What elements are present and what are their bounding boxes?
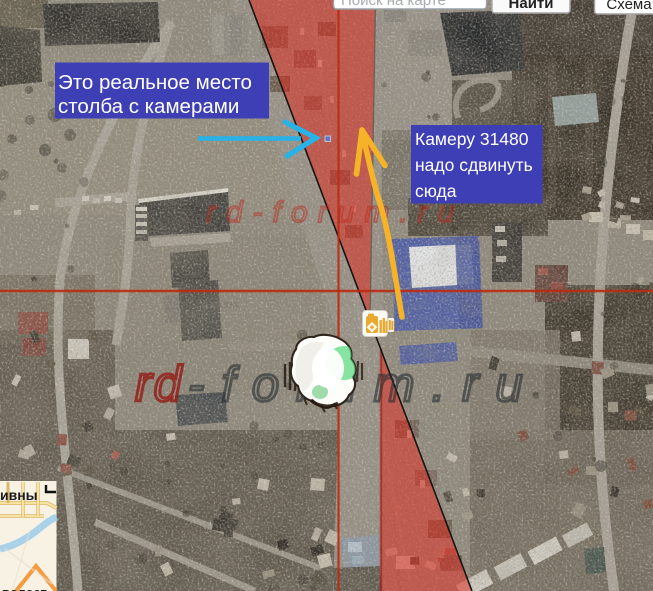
svg-text:Камеру 31480: Камеру 31480 [415, 129, 529, 149]
svg-text:Это реальное место: Это реальное место [58, 71, 252, 94]
svg-text:Найти: Найти [509, 0, 554, 12]
svg-text:Поиск на карте: Поиск на карте [341, 0, 446, 9]
svg-text:волост: волост [2, 585, 47, 591]
svg-text:-forum.ru: -forum.ru [188, 358, 540, 412]
svg-text:надо сдвинуть: надо сдвинуть [415, 155, 533, 175]
svg-text:rd: rd [135, 356, 184, 412]
svg-text:столба с камерами: столба с камерами [58, 95, 239, 118]
svg-text:Схема: Схема [606, 0, 652, 13]
svg-text:сюда: сюда [415, 181, 457, 201]
svg-text:ивны: ивны [0, 487, 38, 503]
